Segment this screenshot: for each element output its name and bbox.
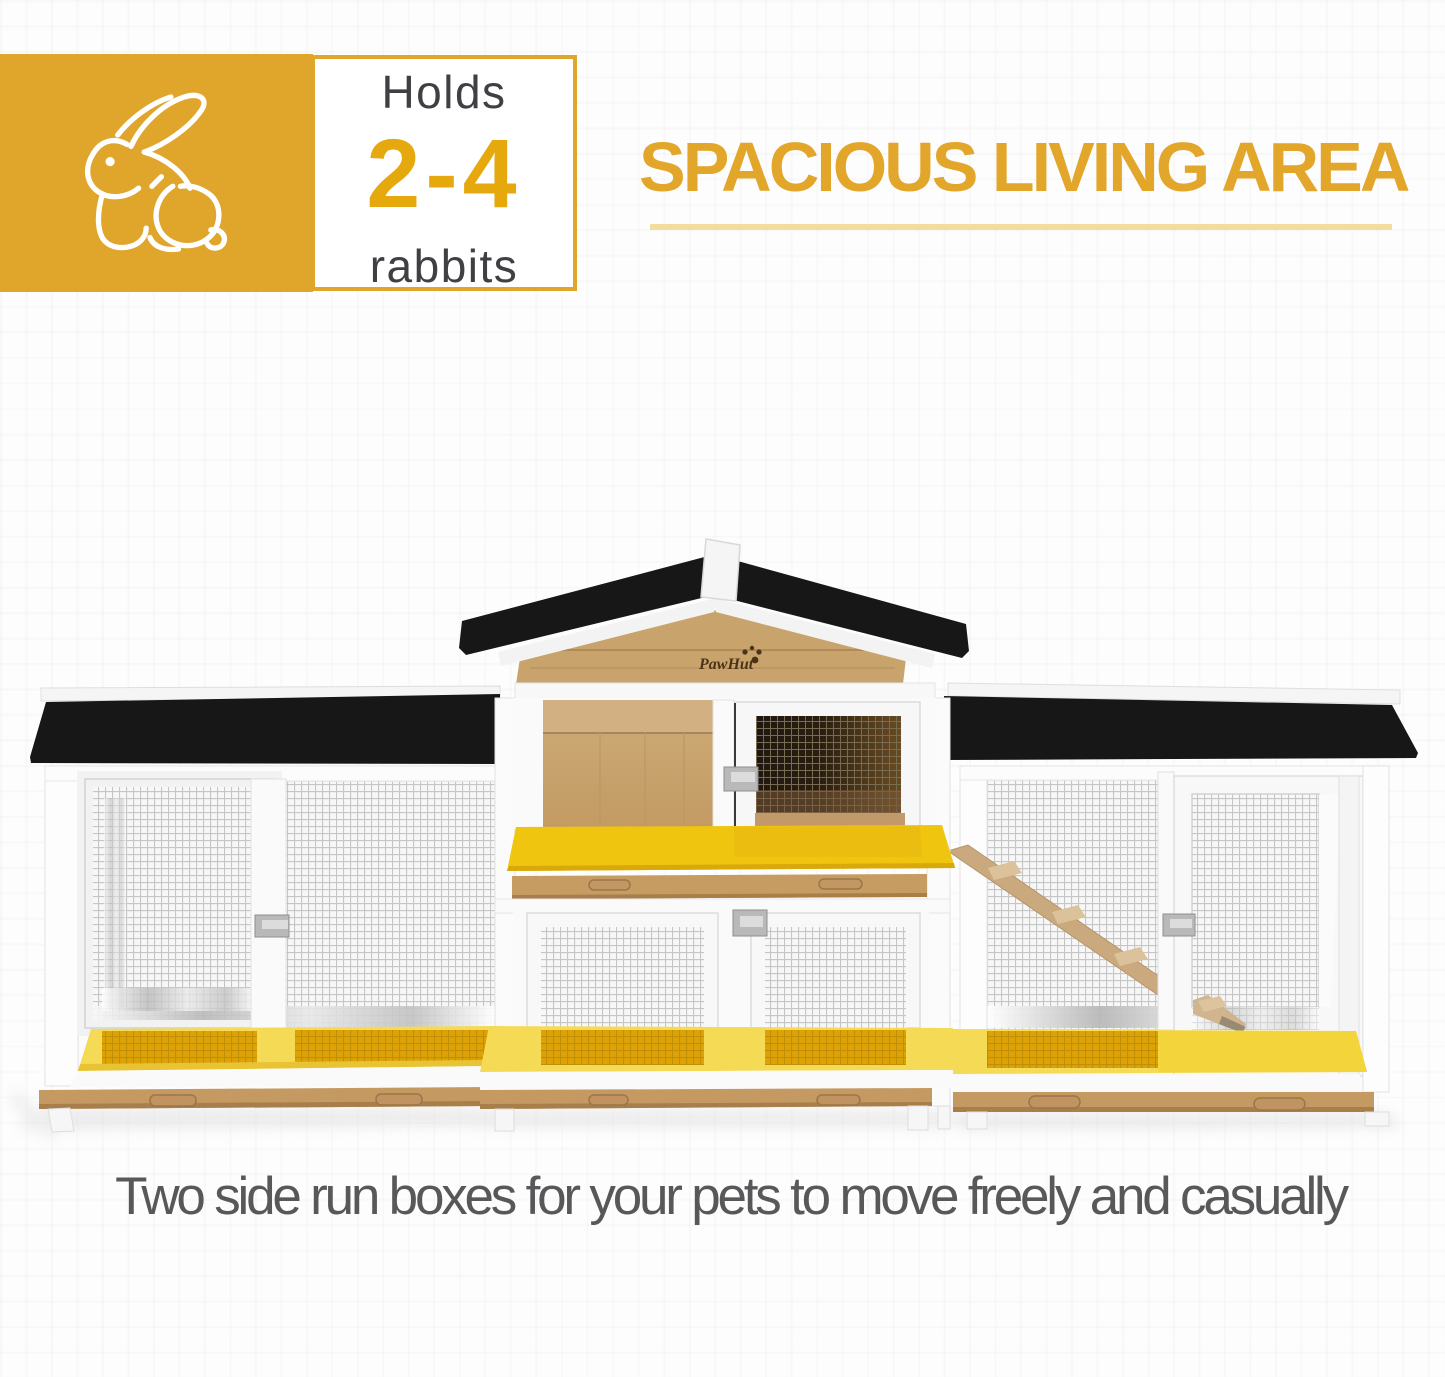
svg-text:PawHut: PawHut	[698, 656, 754, 673]
